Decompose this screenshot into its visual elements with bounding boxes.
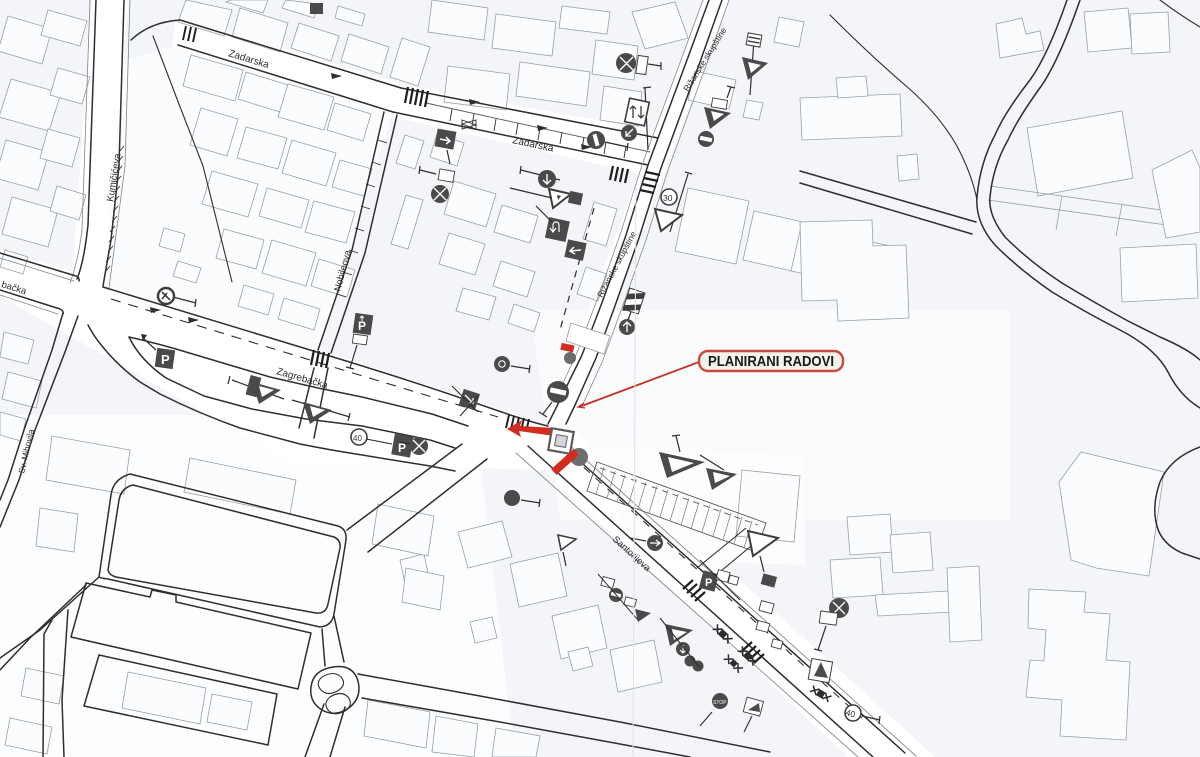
svg-text:P: P — [705, 577, 712, 589]
svg-text:P: P — [161, 352, 170, 367]
svg-text:PLANIRANI RADOVI: PLANIRANI RADOVI — [708, 353, 834, 370]
svg-text:30: 30 — [663, 193, 673, 203]
svg-text:P: P — [358, 319, 366, 333]
svg-text:STOP: STOP — [713, 700, 727, 706]
svg-text:40: 40 — [353, 434, 362, 443]
